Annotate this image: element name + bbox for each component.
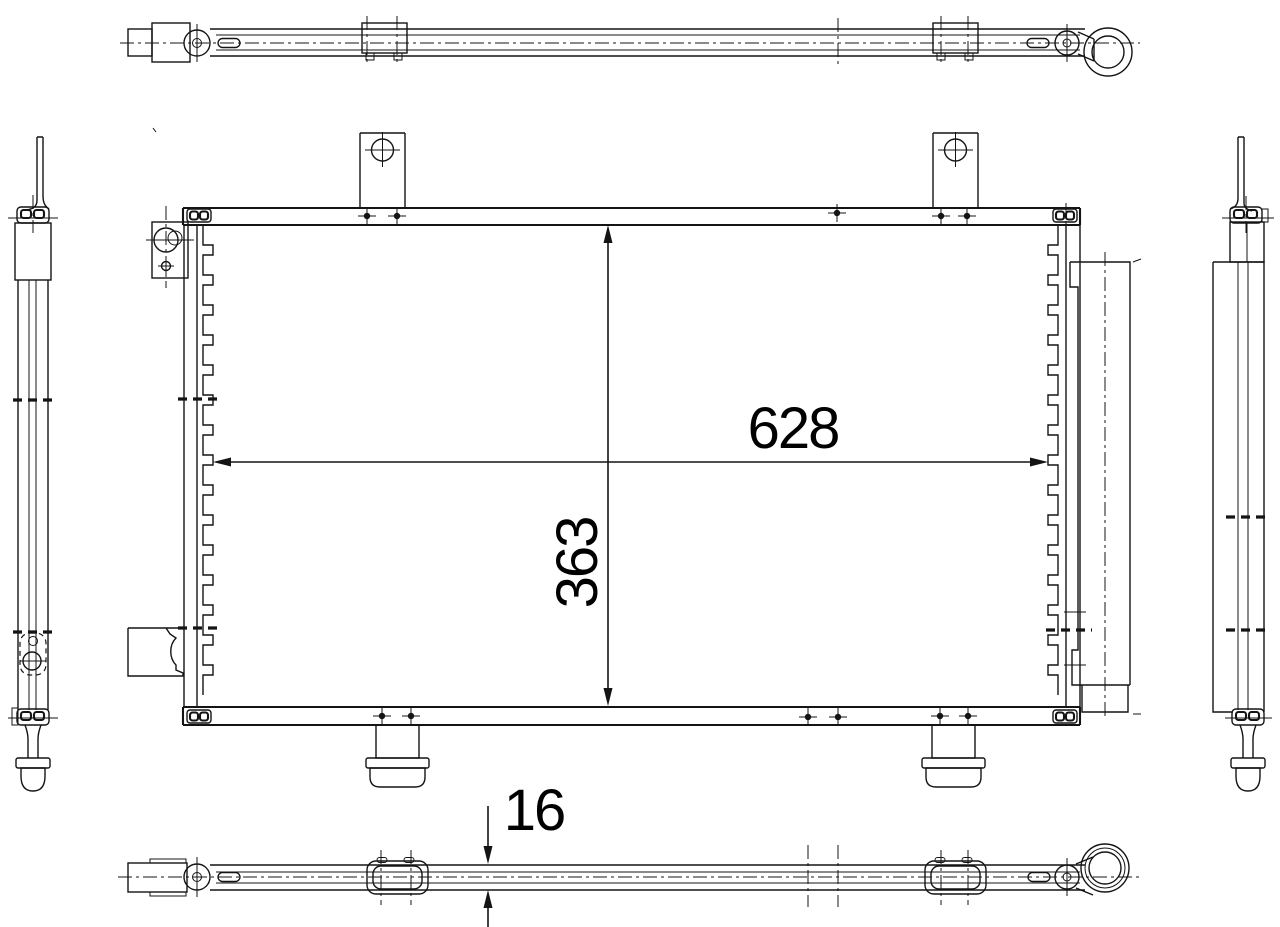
left-header-tank xyxy=(184,225,197,707)
condenser-technical-drawing: 628 363 xyxy=(0,0,1280,927)
dimension-width: 628 xyxy=(213,396,1048,467)
dimension-height-label: 363 xyxy=(545,518,610,609)
bolt-mark xyxy=(959,707,977,725)
dimension-thickness: 16 xyxy=(484,778,565,927)
bottom-view: 16 xyxy=(118,778,1140,927)
receiver-drier xyxy=(1064,252,1141,720)
mounting-bracket-top-left xyxy=(360,132,405,208)
mounting-bracket-top-right xyxy=(933,132,978,208)
left-view-foot xyxy=(16,725,50,791)
drawing-canvas: 628 363 xyxy=(0,0,1280,927)
fin-teeth-right xyxy=(1048,225,1058,695)
dimension-thickness-label: 16 xyxy=(504,778,565,843)
foot-pad-left xyxy=(367,858,428,895)
dimension-height: 363 xyxy=(545,225,613,706)
arrowhead-down xyxy=(484,846,493,864)
bolt-mark xyxy=(829,708,847,726)
ring-fitting xyxy=(1084,28,1132,76)
left-view-port-outline xyxy=(20,633,46,675)
left-view-top-tab xyxy=(26,137,49,210)
right-side-view xyxy=(1213,137,1274,791)
foot-bracket-right xyxy=(922,725,985,787)
ring-fitting-bottom xyxy=(1081,844,1129,892)
connector-block xyxy=(128,628,184,676)
bolt-mark xyxy=(402,707,420,725)
bolt-mark xyxy=(932,207,950,225)
corner-tab-bottom-right xyxy=(1053,710,1077,723)
front-view: 628 363 xyxy=(128,128,1141,787)
arrowhead-down xyxy=(604,688,613,706)
arrowhead-up xyxy=(604,225,613,243)
arrowhead-right xyxy=(1030,458,1048,467)
left-side-view xyxy=(8,137,58,791)
foot-bracket-left xyxy=(366,725,429,787)
foot-pad-right xyxy=(925,858,986,895)
bolt-mark xyxy=(373,707,391,725)
corner-tab-top-left xyxy=(187,209,211,222)
arrowhead-up xyxy=(484,890,493,908)
right-view-bottom-cap xyxy=(1232,709,1264,725)
right-view-top-tab xyxy=(1230,137,1252,211)
bolt-mark xyxy=(958,207,976,225)
corner-tab-top-right xyxy=(1053,209,1077,222)
arrowhead-left xyxy=(213,458,231,467)
corner-tab-bottom-left xyxy=(187,710,211,723)
bolt-mark xyxy=(799,708,817,726)
left-view-bottom-cap xyxy=(17,709,49,725)
bolt-mark xyxy=(828,204,846,222)
top-view xyxy=(120,16,1140,76)
fin-teeth-left xyxy=(203,225,213,695)
bolt-mark xyxy=(358,207,376,225)
bolt-mark xyxy=(388,207,406,225)
dimension-width-label: 628 xyxy=(748,396,839,461)
bolt-mark xyxy=(931,707,949,725)
right-view-foot xyxy=(1231,725,1265,791)
